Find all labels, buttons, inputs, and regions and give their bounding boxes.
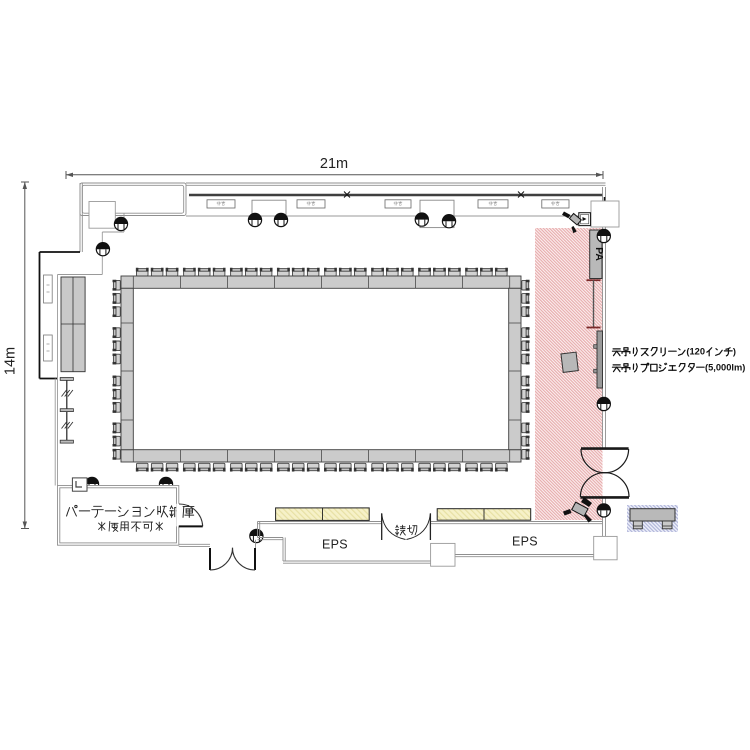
svg-text:): ) [733, 347, 736, 357]
svg-text:EPS: EPS [322, 538, 348, 552]
svg-text:(5,000lm): (5,000lm) [705, 363, 745, 373]
svg-text:14m: 14m [3, 347, 19, 375]
svg-text:(120: (120 [686, 347, 705, 357]
svg-text:EPS: EPS [512, 535, 538, 549]
svg-text:21m: 21m [320, 156, 348, 172]
svg-text:PA: PA [593, 247, 605, 261]
